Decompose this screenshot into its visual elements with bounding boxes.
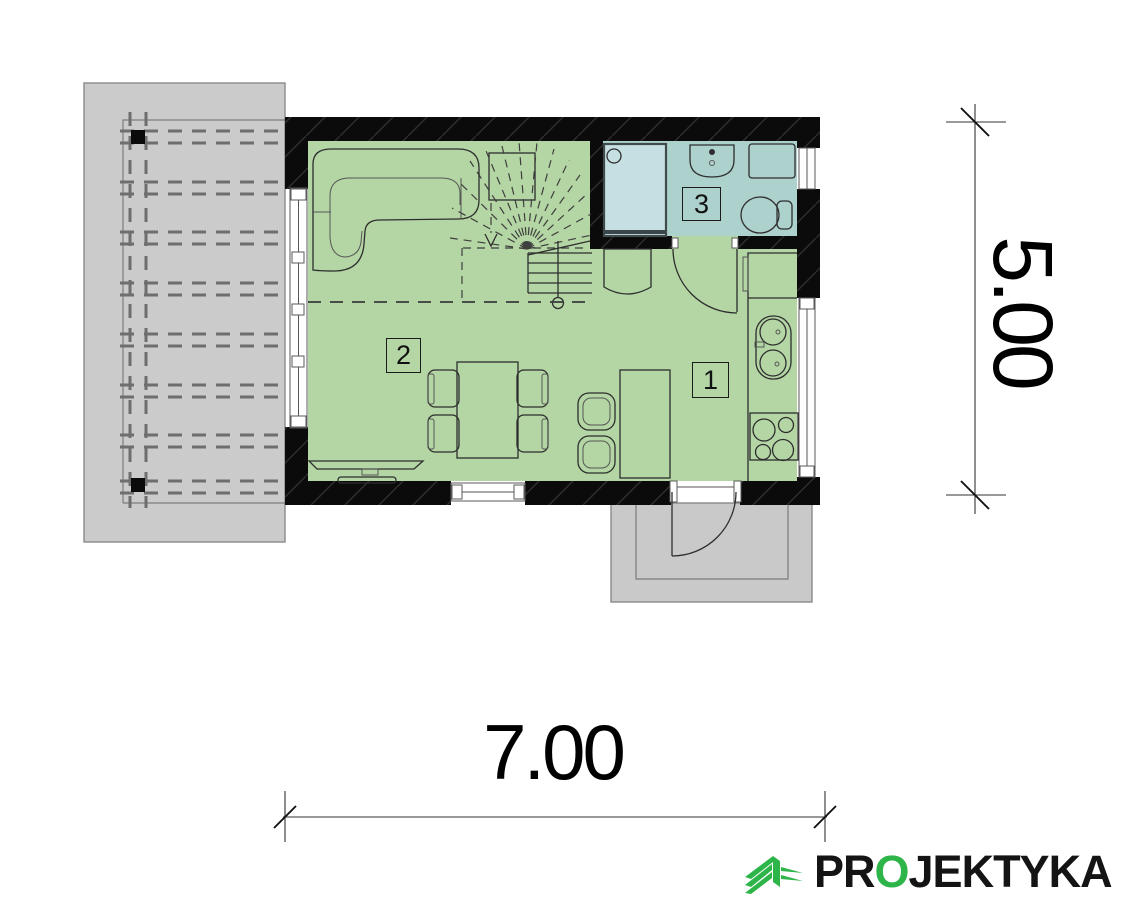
green-building-icon xyxy=(744,849,804,895)
pergola-post xyxy=(131,478,145,492)
dimension-line-width xyxy=(274,791,836,842)
dimension-width-label: 7.00 xyxy=(440,712,666,792)
dimension-height-label: 5.00 xyxy=(982,212,1064,412)
window-kitchen xyxy=(799,298,815,477)
brand-text: PROJEKTYKA xyxy=(814,846,1112,898)
window-left xyxy=(290,188,307,428)
projektyka-logo: PROJEKTYKA xyxy=(744,843,1112,901)
room-label-3: 3 xyxy=(682,187,721,221)
floor-plan-page: 1 2 3 7.00 5.00 PROJEKTYKA xyxy=(0,0,1124,906)
room-label-1: 1 xyxy=(692,362,729,398)
terrace-deck xyxy=(84,83,285,542)
room-label-2: 2 xyxy=(386,338,421,373)
window-bottom xyxy=(451,483,525,501)
floors xyxy=(308,141,797,481)
entry-porch xyxy=(611,503,812,602)
room-number: 1 xyxy=(703,367,718,394)
room-number: 2 xyxy=(396,342,411,369)
window-bathroom xyxy=(799,148,815,189)
shower-stall xyxy=(604,144,666,236)
room-number: 3 xyxy=(694,191,709,218)
pergola-post xyxy=(131,130,145,144)
brand-green-o: O xyxy=(875,846,909,897)
